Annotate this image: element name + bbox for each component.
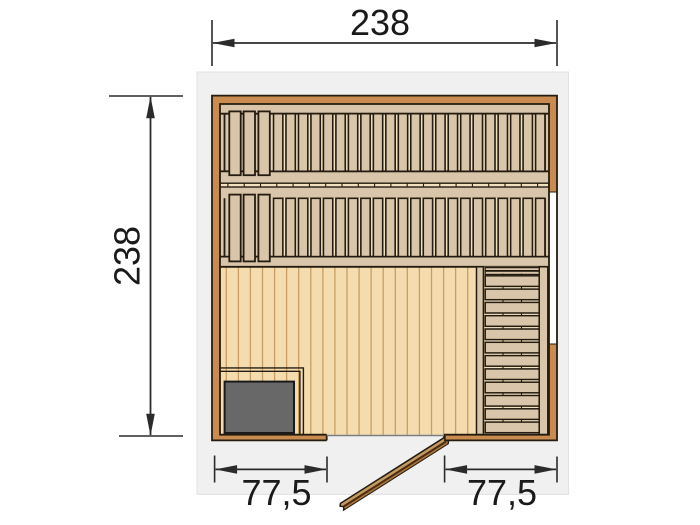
- svg-text:238: 238: [350, 2, 410, 43]
- svg-text:238: 238: [106, 226, 147, 286]
- svg-text:77,5: 77,5: [467, 472, 537, 513]
- svg-text:77,5: 77,5: [241, 472, 311, 513]
